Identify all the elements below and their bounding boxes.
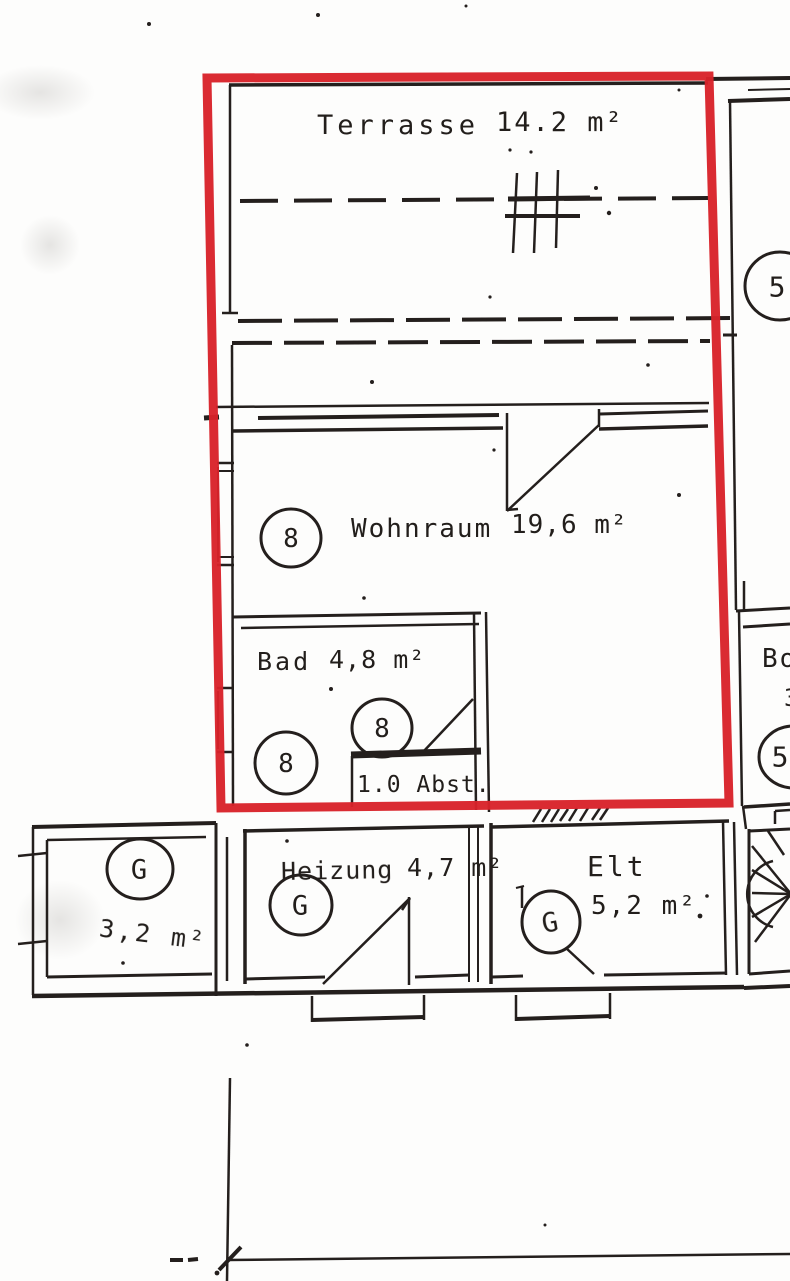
room-label-bad: Bad bbox=[257, 647, 311, 676]
floorplan-drawing bbox=[0, 0, 790, 1281]
unit-badge-neighbor-bottom: 5 bbox=[772, 741, 789, 774]
unit-badge-wohnraum: 8 bbox=[283, 524, 299, 554]
area-label-heizung: 4,7 m² bbox=[407, 853, 503, 882]
unit-badge-heizung: G bbox=[292, 891, 308, 922]
unit-badge-storage: G bbox=[131, 855, 147, 886]
bottom-outer-wall bbox=[32, 986, 790, 996]
area-label-bad: 4,8 m² bbox=[329, 645, 425, 674]
storage-left-walls bbox=[18, 823, 227, 996]
wohnraum-walls bbox=[204, 345, 709, 806]
area-label-neighbor-partial: 3 bbox=[784, 684, 790, 712]
wohnraum-door-swing bbox=[507, 409, 599, 511]
terrace-railing-dashed bbox=[232, 198, 740, 343]
unit-badge-neighbor-top: 5 bbox=[769, 271, 786, 304]
area-label-elt: 5,2 m² bbox=[591, 891, 697, 921]
staircase bbox=[747, 829, 790, 974]
floorplan-scan: Terrasse 14.2 m² Wohnraum 19,6 m² Bad 4,… bbox=[0, 0, 790, 1281]
neighbor-mid-walls bbox=[736, 581, 790, 829]
unit-badge-bad-left: 8 bbox=[278, 749, 294, 779]
room-label-elt: Elt bbox=[587, 850, 647, 883]
window-grid-icon bbox=[505, 170, 590, 253]
room-label-heizung: Heizung bbox=[281, 855, 394, 886]
heizung-walls bbox=[243, 826, 484, 984]
bad-door-swing bbox=[423, 699, 473, 752]
unit-highlight-box bbox=[207, 76, 729, 808]
entry-threshold-left bbox=[312, 995, 424, 1022]
room-label-neighbor-partial: Bo bbox=[762, 644, 790, 674]
elt-hatch-strip bbox=[533, 808, 608, 822]
heizung-door-swing bbox=[323, 897, 410, 985]
room-label-wohnraum: Wohnraum bbox=[351, 514, 492, 544]
entry-threshold-right bbox=[516, 993, 610, 1021]
unit-badge-bad-door: 8 bbox=[374, 714, 390, 744]
dimension-lines bbox=[170, 1078, 790, 1281]
area-label-terrasse: 14.2 m² bbox=[496, 107, 624, 138]
room-label-abstellraum: 1.0 Abst. bbox=[357, 772, 491, 798]
room-label-terrasse: Terrasse bbox=[317, 110, 479, 141]
area-label-wohnraum: 19,6 m² bbox=[511, 510, 628, 540]
